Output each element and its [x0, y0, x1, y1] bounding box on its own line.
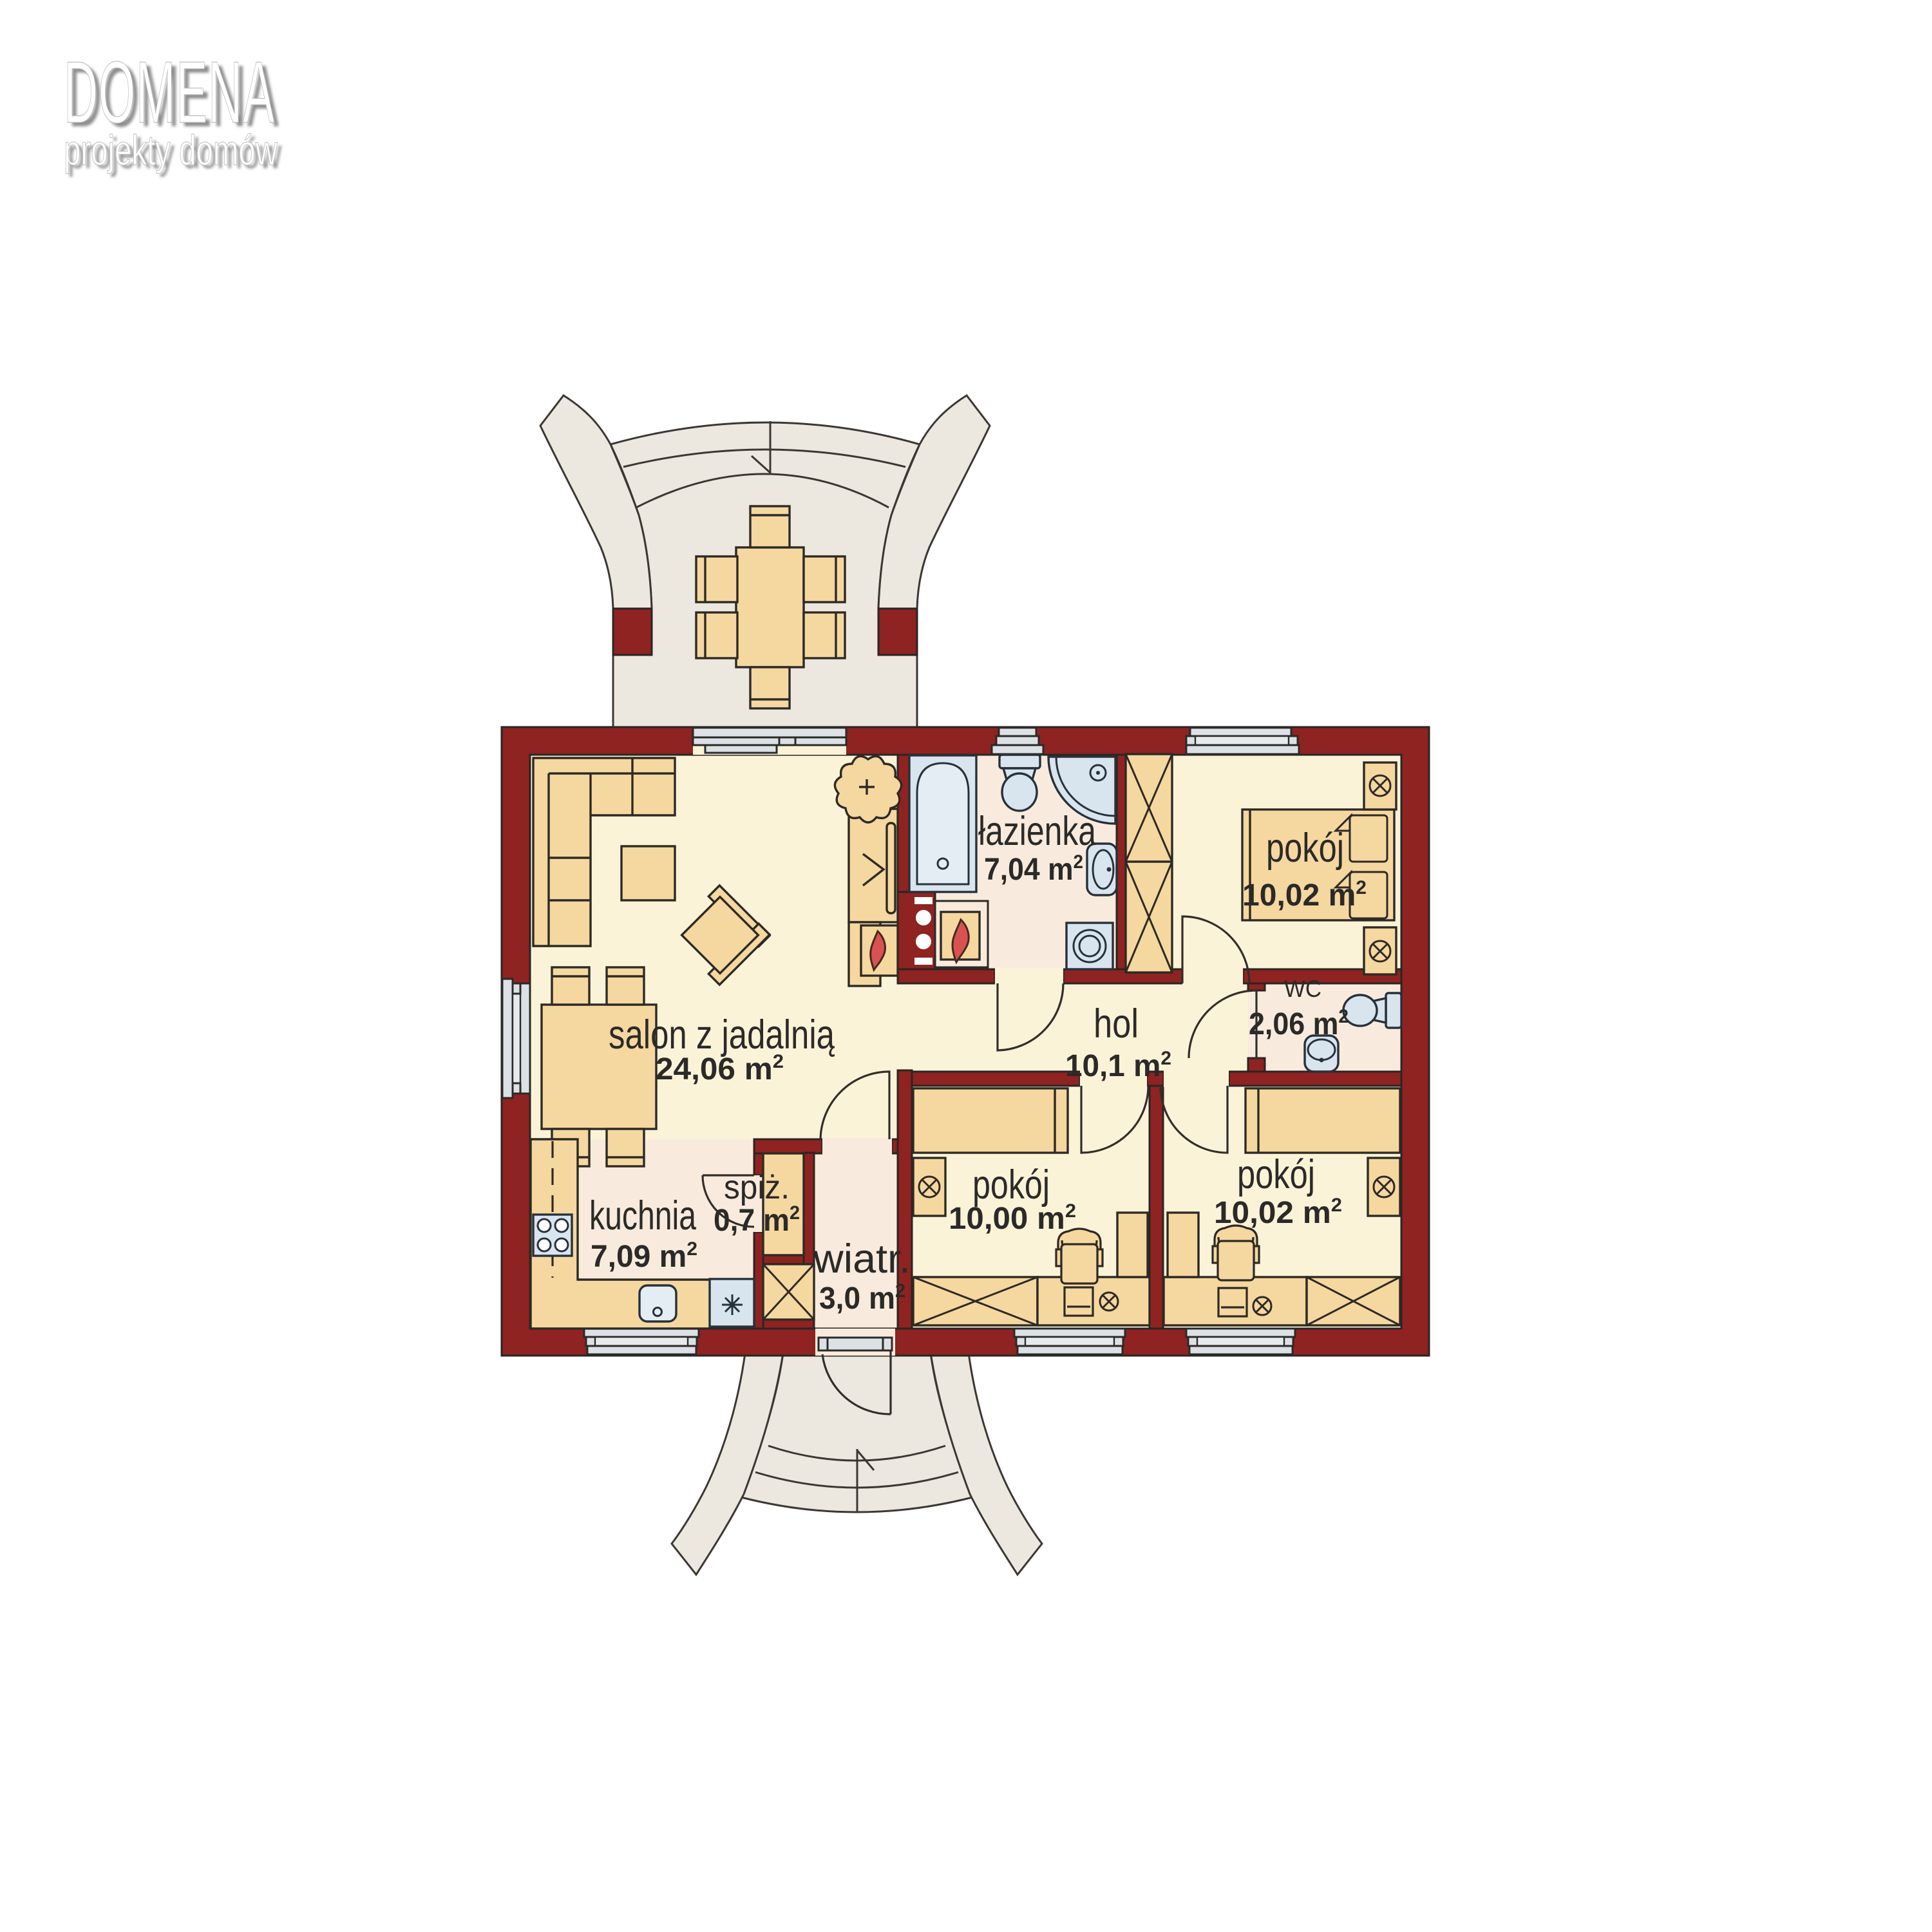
svg-text:0,7 m2: 0,7 m2: [714, 1202, 800, 1238]
svg-text:10,1 m2: 10,1 m2: [1065, 1048, 1171, 1083]
svg-text:7,04 m2: 7,04 m2: [984, 851, 1083, 887]
svg-text:salon z jadalnią: salon z jadalnią: [609, 1012, 835, 1057]
svg-text:2,06 m2: 2,06 m2: [1249, 1006, 1349, 1041]
svg-text:7,09 m2: 7,09 m2: [591, 1238, 697, 1274]
svg-text:10,00 m2: 10,00 m2: [949, 1200, 1076, 1236]
svg-text:pokój: pokój: [1266, 826, 1344, 871]
svg-text:wiatr.: wiatr.: [813, 1236, 911, 1282]
svg-text:WC: WC: [1284, 976, 1321, 1002]
svg-text:łazienka: łazienka: [978, 809, 1097, 854]
svg-text:10,02 m2: 10,02 m2: [1242, 877, 1367, 913]
svg-text:kuchnia: kuchnia: [589, 1193, 697, 1238]
svg-text:spiż.: spiż.: [724, 1169, 790, 1206]
svg-text:projekty domów: projekty domów: [64, 126, 278, 174]
svg-text:pokój: pokój: [1237, 1152, 1315, 1197]
svg-text:pokój: pokój: [972, 1162, 1050, 1207]
svg-text:24,06 m2: 24,06 m2: [656, 1051, 784, 1086]
svg-text:hol: hol: [1094, 1001, 1139, 1046]
svg-text:3,0 m2: 3,0 m2: [819, 1280, 905, 1316]
svg-text:10,02 m2: 10,02 m2: [1214, 1195, 1342, 1230]
